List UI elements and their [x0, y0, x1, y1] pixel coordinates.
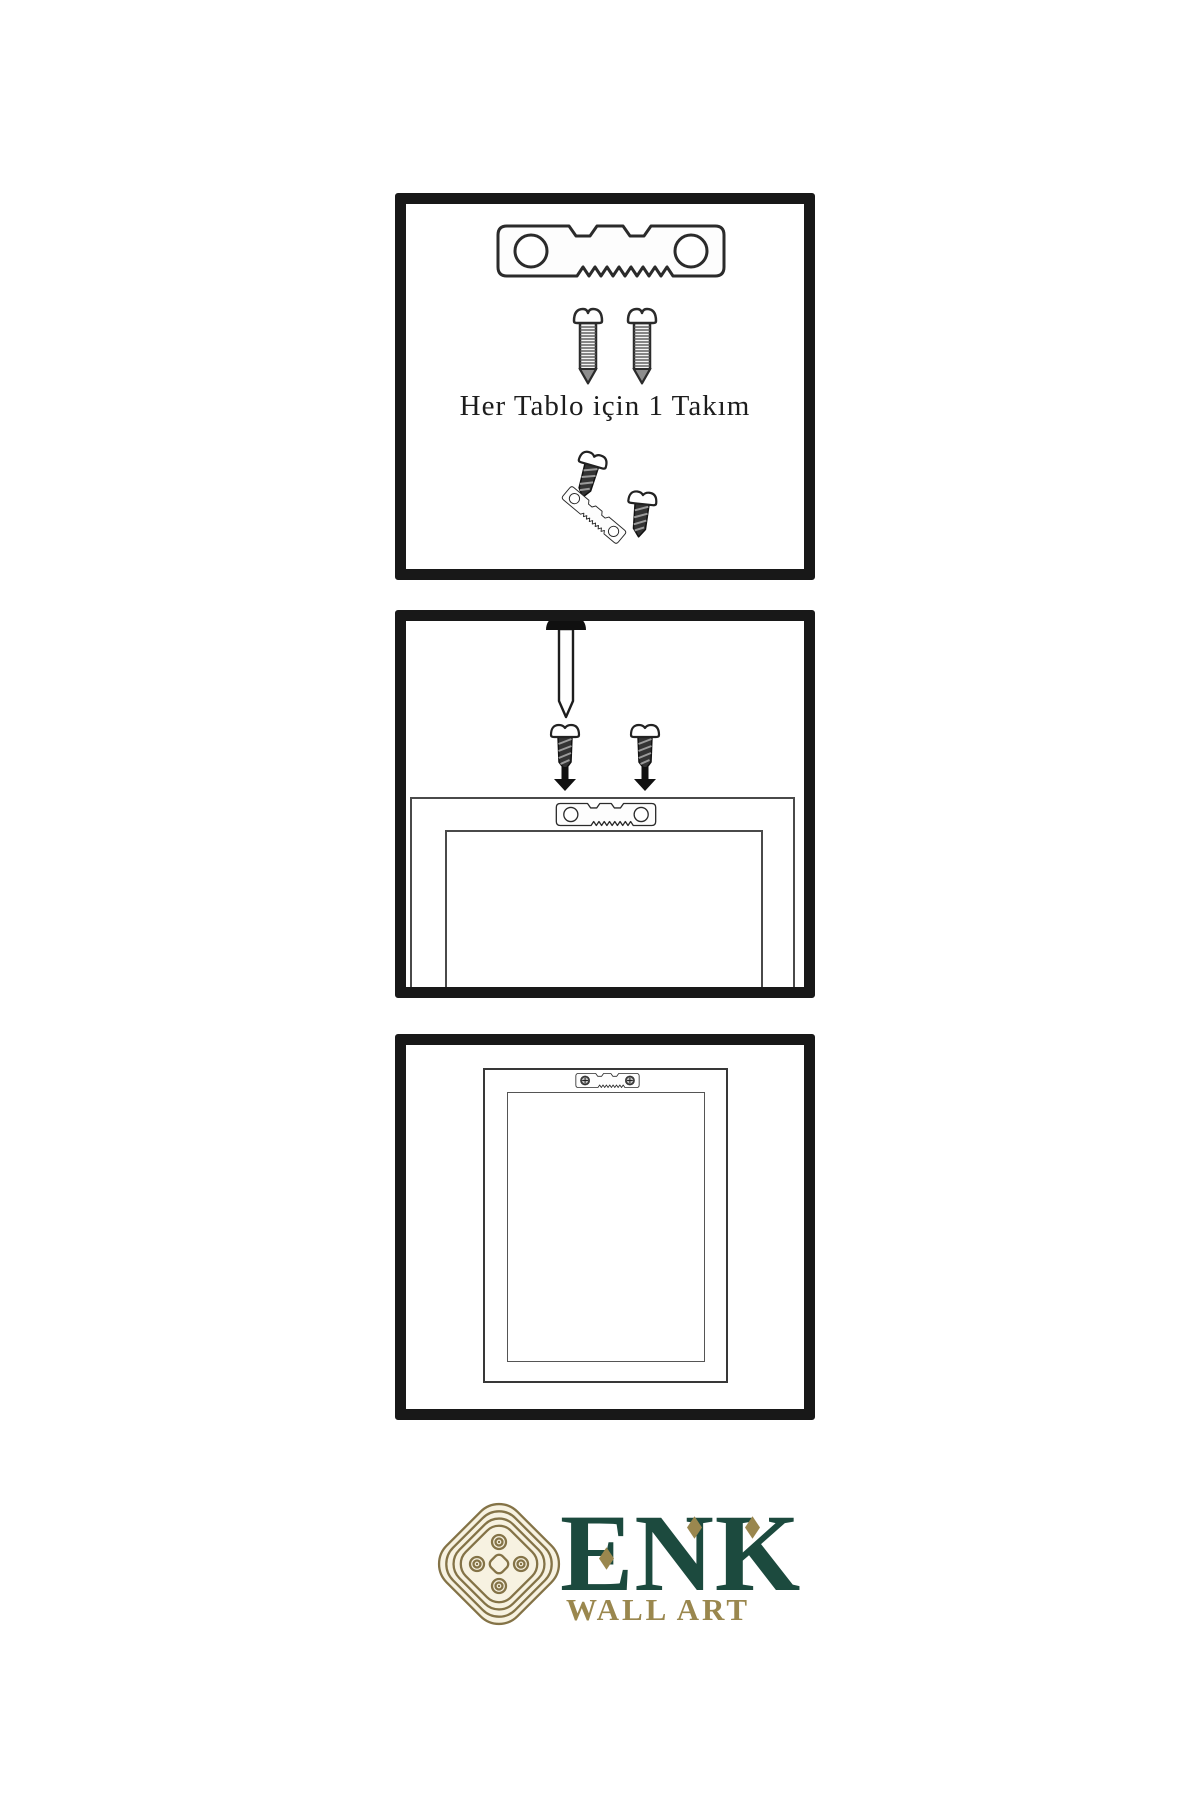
- screw-icon: [624, 305, 660, 387]
- step-3-panel: [395, 1034, 815, 1420]
- step-caption: Her Tablo için 1 Takım: [406, 390, 804, 423]
- mounting-screw-icon: [628, 722, 662, 772]
- screw-icon: [570, 305, 606, 387]
- sawtooth-hanger-icon: [555, 802, 657, 827]
- diamond-accent-icon: [745, 1516, 760, 1539]
- frame-front-inner-edge: [507, 1092, 705, 1362]
- step-2-panel: [395, 610, 815, 998]
- diamond-accent-icon: [599, 1547, 614, 1570]
- frame-back-inner-edge: [445, 830, 763, 990]
- sawtooth-hanger-icon: [495, 223, 727, 279]
- mounting-screw-icon: [621, 487, 660, 540]
- hanging-instruction-sheet: Her Tablo için 1 Takım: [0, 0, 1200, 1800]
- arrow-down-icon: [554, 767, 576, 791]
- nail-icon: [544, 613, 588, 719]
- diamond-accent-icon: [687, 1516, 702, 1539]
- sawtooth-hanger-installed-icon: [575, 1072, 640, 1089]
- arrow-down-icon: [634, 767, 656, 791]
- step-1-panel: Her Tablo için 1 Takım: [395, 193, 815, 580]
- knot-logo-icon: [437, 1502, 561, 1626]
- mounting-screw-icon: [548, 722, 582, 772]
- brand-subtitle: WALL ART: [566, 1594, 750, 1625]
